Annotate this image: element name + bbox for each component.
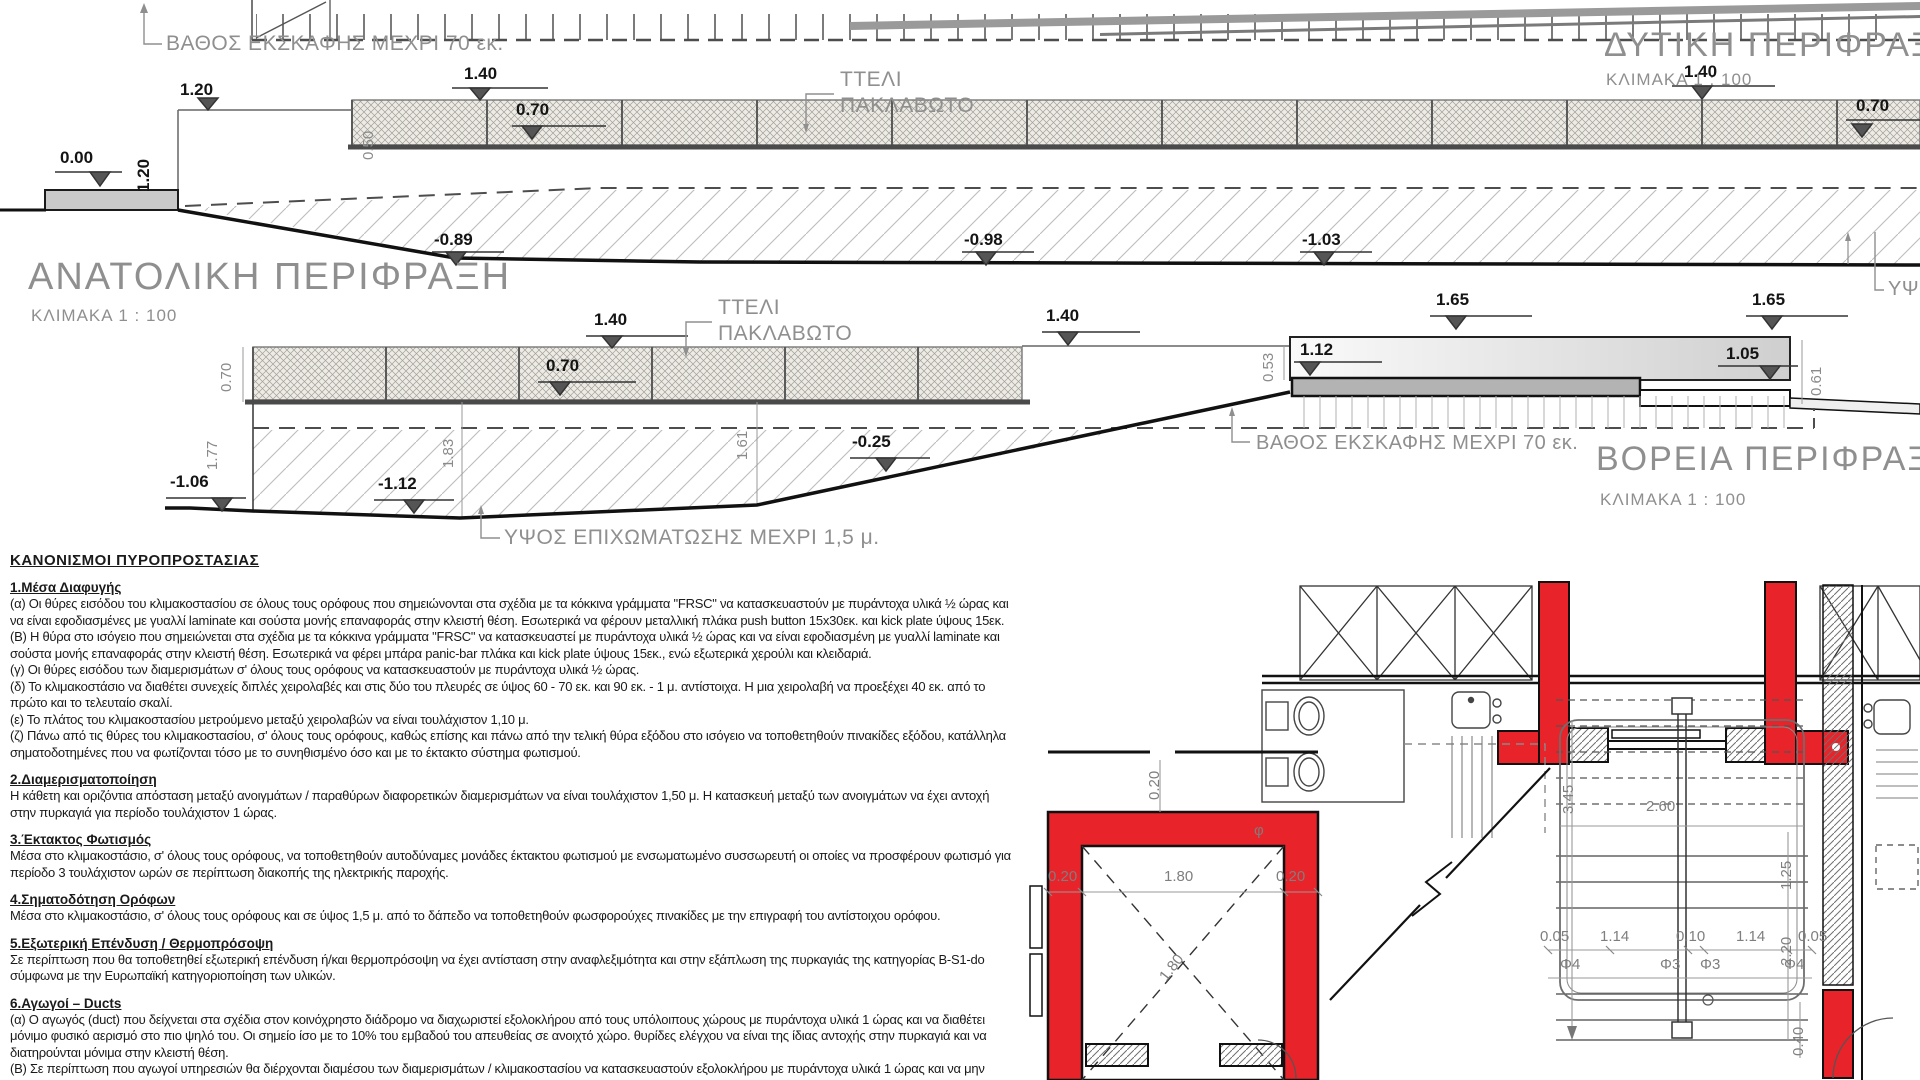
level-label: 0.70: [516, 100, 549, 120]
note-excavation-depth-top: ΒΑΘΟΣ ΕΚΣΚΑΦΗΣ ΜΕΧΡΙ 70 εκ.: [166, 32, 504, 56]
regulation-section: 4.Σηματοδότηση ΟρόφωνΜέσα στο κλιμακοστά…: [10, 891, 1015, 925]
dim-label: Φ4: [1784, 956, 1804, 973]
dim-label: 0.20: [1146, 771, 1163, 800]
dim-label: 1.61: [734, 431, 751, 460]
stairwell-floor-plan: [1030, 582, 1920, 1080]
regulation-paragraph: (ε) Το πλάτος του κλιμακοστασίου μετρούμ…: [10, 712, 1015, 729]
level-label: -1.12: [378, 474, 417, 494]
note-mesh-east-2: ΠΑΚΛΑΒΩΤΟ: [718, 322, 852, 346]
bathroom-fixtures-right: [1864, 700, 1918, 889]
regulation-section-title: 2.Διαμερισματοποίηση: [10, 771, 1015, 788]
note-excavation-depth-north: ΒΑΘΟΣ ΕΚΣΚΑΦΗΣ ΜΕΧΡΙ 70 εκ.: [1256, 432, 1578, 455]
level-label: 0.00: [60, 148, 93, 168]
dim-label: 0.20: [1048, 868, 1077, 885]
elevator-shaft: [1030, 752, 1322, 1080]
regulation-section-title: 6.Αγωγοί – Ducts: [10, 995, 1015, 1012]
level-label: 1.05: [1726, 344, 1759, 364]
dim-label: 0.70: [218, 363, 235, 392]
regulation-section: 5.Εξωτερική Επένδυση / ΘερμοπρόσοψηΣε πε…: [10, 935, 1015, 985]
right-wall-hatched: [1823, 585, 1853, 985]
title-north-fence: ΒΟΡΕΙΑ ΠΕΡΙΦΡΑΞΗ: [1596, 440, 1920, 479]
level-label: -0.98: [964, 230, 1003, 250]
level-label: 1.40: [594, 310, 627, 330]
level-label: -1.03: [1302, 230, 1341, 250]
dim-label: Φ4: [1560, 956, 1580, 973]
regulation-section: 2.ΔιαμερισματοποίησηΗ κάθετη και οριζόντ…: [10, 771, 1015, 821]
right-wall-red: [1823, 990, 1853, 1078]
scale-east-fence: ΚΛΙΜΑΚΑ 1 : 100: [31, 306, 177, 326]
dim-label: 0.61: [1808, 367, 1825, 396]
regulation-section-title: 4.Σηματοδότηση Ορόφων: [10, 891, 1015, 908]
regulation-section: 3.Έκτακτος ΦωτισμόςΜέσα στο κλιμακοστάσι…: [10, 831, 1015, 881]
architectural-drawing-sheet: ΑΝΑΤΟΛΙΚΗ ΠΕΡΙΦΡΑΞΗ ΚΛΙΜΑΚΑ 1 : 100 ΔΥΤΙ…: [0, 0, 1920, 1080]
regulation-section: 6.Αγωγοί – Ducts(α) Ο αγωγός (duct) που …: [10, 995, 1015, 1080]
regulation-section-title: 5.Εξωτερική Επένδυση / Θερμοπρόσοψη: [10, 935, 1015, 952]
regulation-paragraph: (Β) Σε περίπτωση που αγωγοί υπηρεσιών θα…: [10, 1061, 1015, 1080]
sink-and-duct: [1452, 692, 1501, 838]
regulation-paragraph: (δ) Το κλιμακοστάσιο να διαθέτει συνεχεί…: [10, 679, 1015, 712]
regulation-paragraph: (α) Οι θύρες εισόδου του κλιμακοστασίου …: [10, 596, 1015, 629]
level-label: 1.20: [134, 159, 154, 192]
level-label: 1.65: [1752, 290, 1785, 310]
north-fence-elevation: [1022, 316, 1920, 442]
regulation-paragraph: (α) Ο αγωγός (duct) που δείχνεται στα σχ…: [10, 1012, 1015, 1062]
regulation-paragraph: Μέσα στο κλιμακοστάσιο, σ' όλους τους ορ…: [10, 908, 1015, 925]
dim-label: 1.14: [1736, 928, 1765, 945]
regulation-paragraph: Σε περίπτωση που θα τοποθετηθεί εξωτερικ…: [10, 952, 1015, 985]
note-mesh-east-1: ΤΤΕΛΙ: [718, 296, 780, 320]
dim-label: 1.80: [1164, 868, 1193, 885]
note-mesh-top-2: ΠΑΚΛΑΒΩΤΟ: [840, 94, 974, 118]
regulation-paragraph: (Β) Η θύρα στο ισόγειο που σημειώνεται σ…: [10, 629, 1015, 662]
level-label: 0.70: [546, 356, 579, 376]
title-west-fence: ΔΥΤΙΚΗ ΠΕΡΙΦΡΑΞΗ: [1604, 26, 1920, 65]
dim-label: 1.83: [440, 439, 457, 468]
level-label: -1.06: [170, 472, 209, 492]
level-label: -0.25: [852, 432, 891, 452]
level-label: 1.40: [464, 64, 497, 84]
dim-label: 0.10: [1676, 928, 1705, 945]
dim-label: 0.20: [1276, 868, 1305, 885]
dim-label: 0.53: [1260, 353, 1277, 382]
level-label: 1.40: [1684, 62, 1717, 82]
dim-label: 2.60: [1646, 798, 1675, 815]
dim-label: 1.25: [1778, 861, 1795, 890]
dim-label: Φ3: [1700, 956, 1720, 973]
dim-label: 1.77: [204, 441, 221, 470]
regulations-sections: 1.Μέσα Διαφυγής(α) Οι θύρες εισόδου του …: [10, 579, 1015, 1080]
dim-label: 3.45: [1560, 785, 1577, 814]
title-east-fence: ΑΝΑΤΟΛΙΚΗ ΠΕΡΙΦΡΑΞΗ: [28, 256, 511, 299]
level-label: 1.65: [1436, 290, 1469, 310]
note-edge-cutoff: ΥΨΟ: [1888, 278, 1920, 301]
note-fill-height: ΥΨΟΣ ΕΠΙΧΩΜΑΤΩΣΗΣ ΜΕΧΡΙ 1,5 μ.: [504, 526, 880, 550]
dim-label: 0.05: [1798, 928, 1827, 945]
regulation-paragraph: (ζ) Πάνω από τις θύρες του κλιμακοστασίο…: [10, 728, 1015, 761]
level-label: 0.70: [1856, 96, 1889, 116]
regulation-paragraph: Η κάθετη και οριζόντια απόσταση μεταξύ α…: [10, 788, 1015, 821]
level-label: -0.89: [434, 230, 473, 250]
fire-regulations-block: ΚΑΝΟΝΙΣΜΟΙ ΠΥΡΟΠΡΟΣΤΑΣΙΑΣ 1.Μέσα Διαφυγή…: [10, 552, 1015, 1080]
dim-label: 0.40: [1790, 1027, 1807, 1056]
regulation-paragraph: Μέσα στο κλιμακοστάσιο, σ' όλους τους ορ…: [10, 848, 1015, 881]
dim-label: 0.05: [1540, 928, 1569, 945]
regulation-paragraph: (γ) Οι θύρες εισόδου των διαμερισμάτων σ…: [10, 662, 1015, 679]
dim-label: 0.50: [360, 131, 377, 160]
regulations-heading: ΚΑΝΟΝΙΣΜΟΙ ΠΥΡΟΠΡΟΣΤΑΣΙΑΣ: [10, 552, 1015, 569]
regulation-section: 1.Μέσα Διαφυγής(α) Οι θύρες εισόδου του …: [10, 579, 1015, 761]
level-label: 1.40: [1046, 306, 1079, 326]
note-mesh-top-1: ΤΤΕΛΙ: [840, 68, 902, 92]
regulation-section-title: 1.Μέσα Διαφυγής: [10, 579, 1015, 596]
dim-label: Φ3: [1660, 956, 1680, 973]
level-label: 1.20: [180, 80, 213, 100]
dim-label: 1.14: [1600, 928, 1629, 945]
scale-north-fence: ΚΛΙΜΑΚΑ 1 : 100: [1600, 490, 1746, 510]
level-label: 1.12: [1300, 340, 1333, 360]
regulation-section-title: 3.Έκτακτος Φωτισμός: [10, 831, 1015, 848]
scale-west-fence: ΚΛΙΜΑΚΑ 1 : 100: [1606, 70, 1752, 90]
dim-label: φ: [1254, 822, 1264, 839]
